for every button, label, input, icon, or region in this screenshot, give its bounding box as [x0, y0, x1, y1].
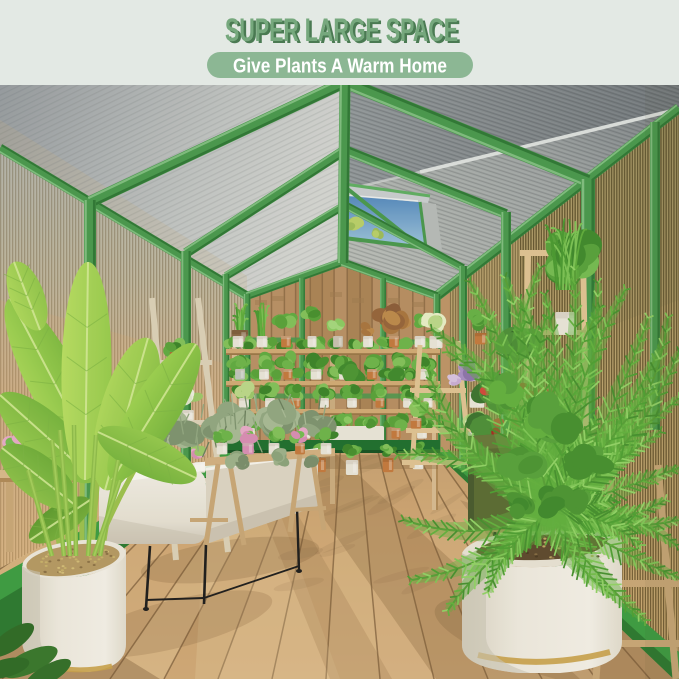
svg-text:Give Plants A Warm Home: Give Plants A Warm Home — [233, 56, 447, 78]
svg-text:SUPER LARGE SPACE: SUPER LARGE SPACE — [225, 12, 458, 48]
